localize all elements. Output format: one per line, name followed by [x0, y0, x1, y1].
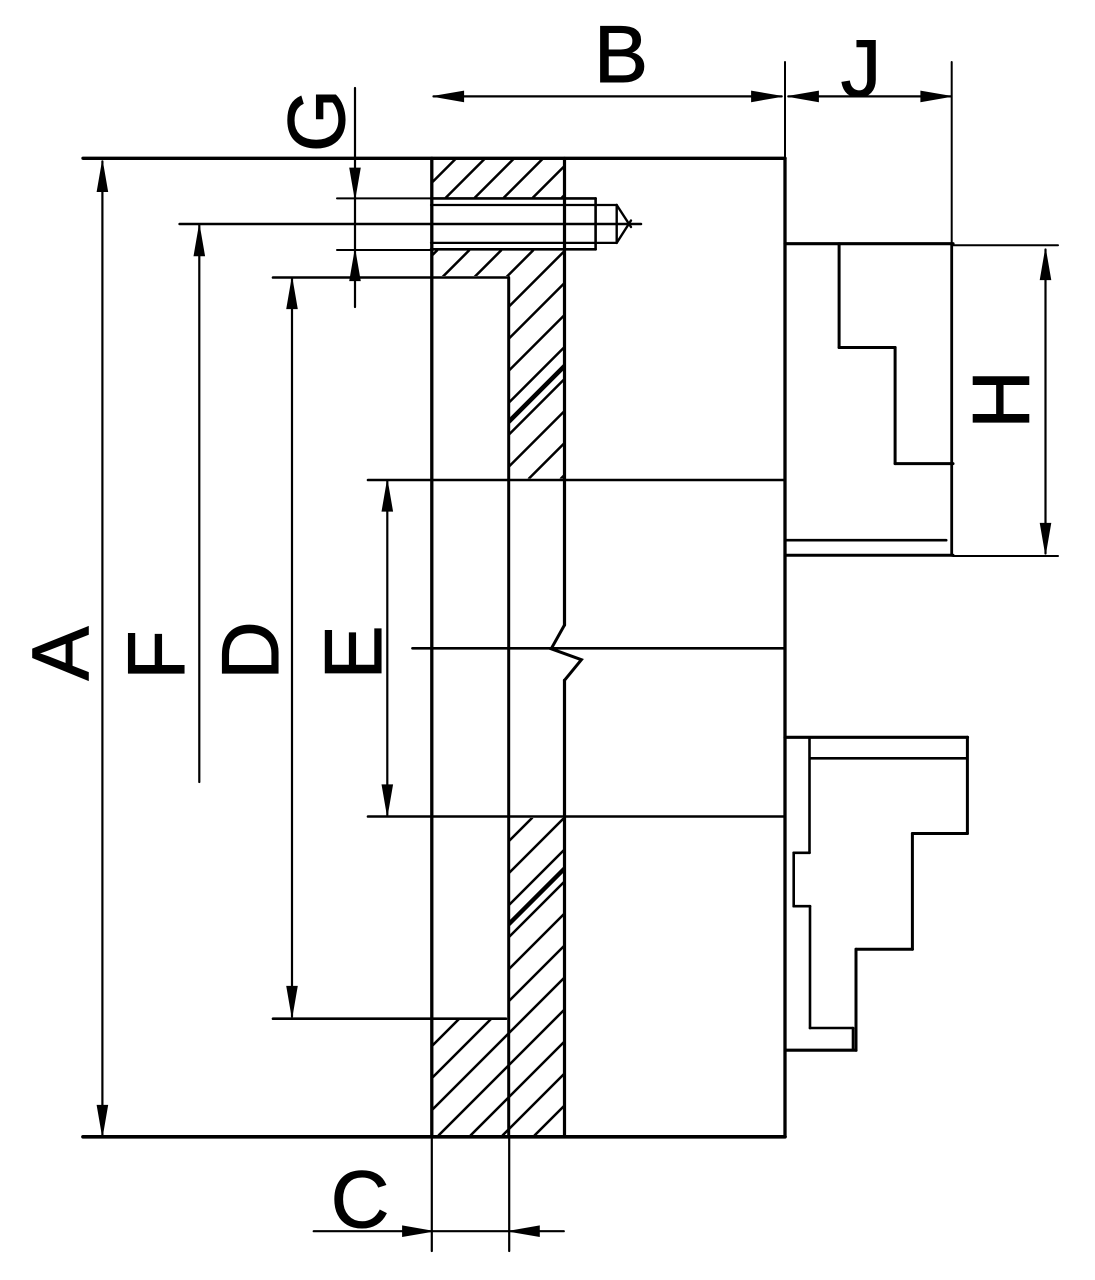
svg-text:A: A [17, 626, 107, 680]
svg-text:C: C [331, 1155, 390, 1245]
svg-text:E: E [309, 625, 399, 679]
svg-text:B: B [594, 10, 648, 100]
svg-text:D: D [206, 621, 296, 680]
svg-text:F: F [112, 630, 202, 679]
svg-text:H: H [957, 370, 1047, 429]
svg-text:G: G [272, 89, 362, 152]
svg-text:J: J [841, 24, 882, 114]
